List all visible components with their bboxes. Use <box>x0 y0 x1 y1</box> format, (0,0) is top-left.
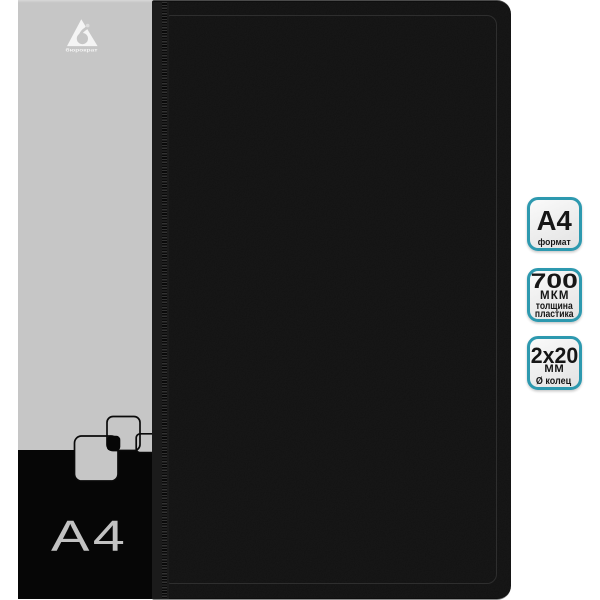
svg-text:бюрократ: бюрократ <box>66 46 99 53</box>
